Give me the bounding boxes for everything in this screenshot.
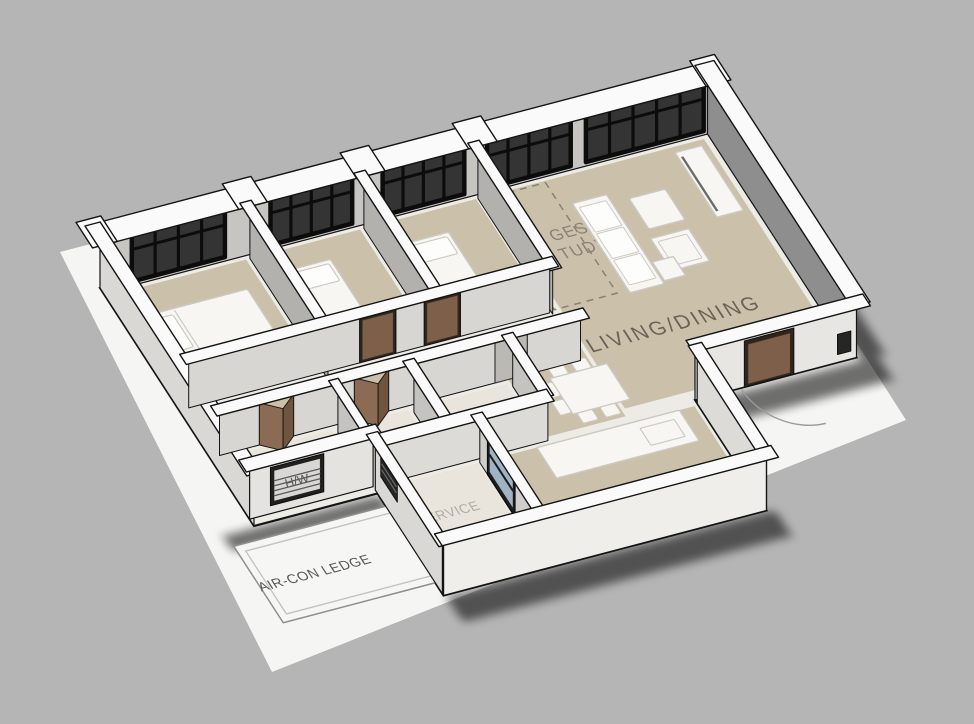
floorplan-viewport[interactable]: MAINLIVING/DININGGESTEDTUDYAIR-CON LEDGE…	[0, 0, 974, 724]
corner-window	[838, 331, 851, 355]
floorplan-3d-stage: MAINLIVING/DININGGESTEDTUDYAIR-CON LEDGE…	[0, 0, 974, 724]
bathroom-bifold-door-1	[259, 403, 283, 451]
